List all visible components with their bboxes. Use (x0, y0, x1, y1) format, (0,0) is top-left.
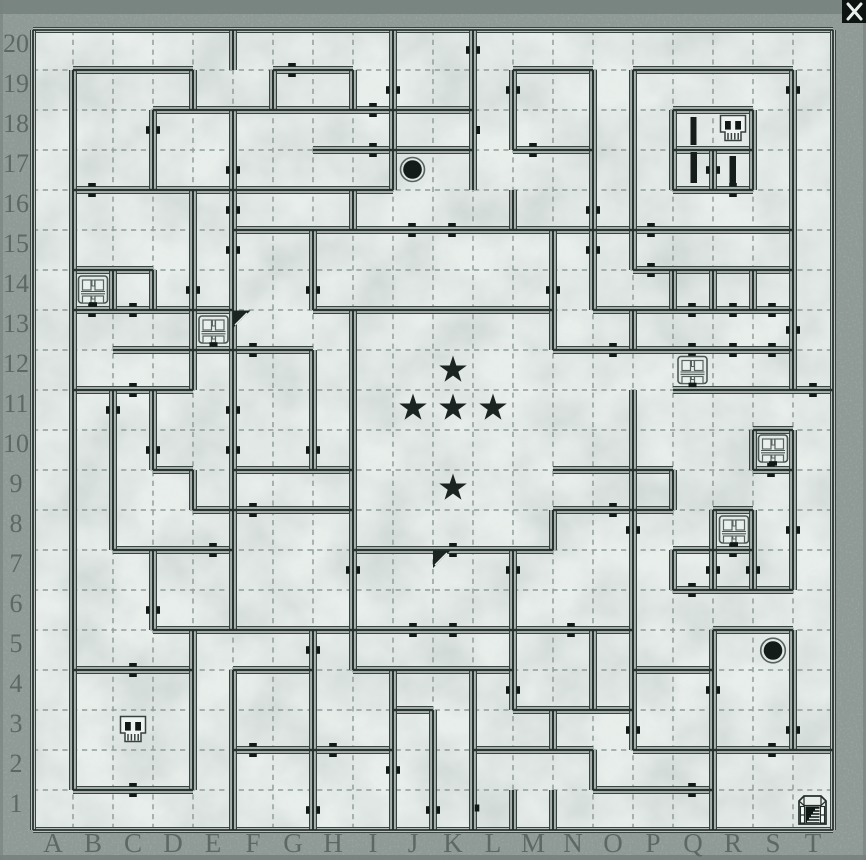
svg-text:10: 10 (3, 429, 29, 458)
svg-text:2: 2 (10, 749, 23, 778)
svg-text:I: I (369, 828, 378, 858)
svg-text:D: D (163, 828, 183, 858)
svg-text:G: G (283, 828, 303, 858)
svg-text:15: 15 (3, 229, 29, 258)
svg-text:K: K (443, 828, 463, 858)
svg-text:H: H (323, 828, 343, 858)
svg-text:S: S (765, 828, 780, 858)
svg-text:N: N (563, 828, 583, 858)
svg-text:F: F (245, 828, 260, 858)
svg-text:5: 5 (10, 629, 23, 658)
svg-text:9: 9 (10, 469, 23, 498)
svg-text:A: A (43, 828, 63, 858)
svg-text:19: 19 (3, 69, 29, 98)
svg-text:4: 4 (10, 669, 23, 698)
svg-text:O: O (603, 828, 623, 858)
svg-text:C: C (124, 828, 142, 858)
svg-text:L: L (485, 828, 502, 858)
svg-text:17: 17 (3, 149, 29, 178)
svg-text:E: E (205, 828, 222, 858)
svg-text:J: J (408, 828, 419, 858)
svg-text:T: T (805, 828, 822, 858)
svg-text:P: P (645, 828, 660, 858)
svg-text:R: R (724, 828, 742, 858)
svg-text:1: 1 (10, 789, 23, 818)
svg-text:18: 18 (3, 109, 29, 138)
svg-text:M: M (521, 828, 545, 858)
svg-text:8: 8 (10, 509, 23, 538)
svg-text:6: 6 (10, 589, 23, 618)
svg-text:11: 11 (3, 389, 28, 418)
svg-text:13: 13 (3, 309, 29, 338)
svg-text:14: 14 (3, 269, 29, 298)
svg-text:20: 20 (3, 29, 29, 58)
svg-text:7: 7 (10, 549, 23, 578)
svg-text:12: 12 (3, 349, 29, 378)
svg-text:B: B (84, 828, 102, 858)
svg-text:3: 3 (10, 709, 23, 738)
svg-text:Q: Q (683, 828, 703, 858)
svg-text:16: 16 (3, 189, 29, 218)
